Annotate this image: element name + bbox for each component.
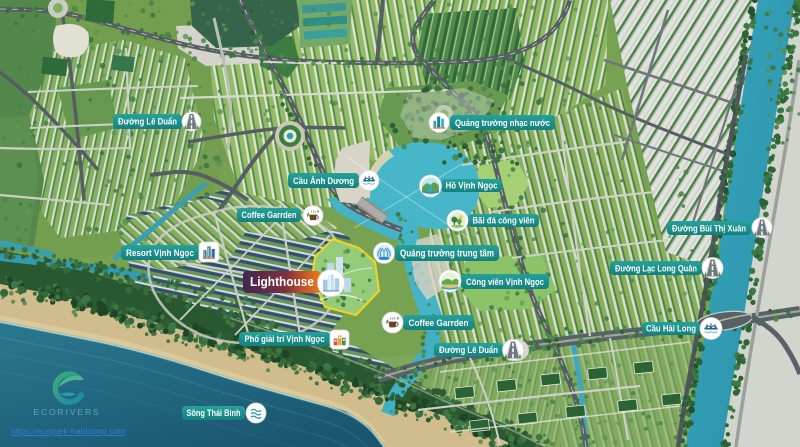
- svg-text:ECORIVERS: ECORIVERS: [33, 407, 100, 417]
- svg-text:Lighthouse: Lighthouse: [250, 275, 314, 289]
- svg-text:Đường Lạc Long Quân: Đường Lạc Long Quân: [615, 263, 697, 274]
- svg-text:Đường Bùi Thị Xuân: Đường Bùi Thị Xuân: [672, 223, 746, 234]
- svg-text:https://ecopark-haiduong.com: https://ecopark-haiduong.com: [11, 426, 125, 436]
- svg-text:Cầu Hải Long: Cầu Hải Long: [646, 324, 696, 334]
- svg-text:Coffee Garrden: Coffee Garrden: [242, 210, 297, 220]
- svg-text:Công viên Vịnh Ngọc: Công viên Vịnh Ngọc: [466, 277, 544, 288]
- svg-text:Bãi đá công viên: Bãi đá công viên: [473, 216, 535, 226]
- svg-text:Hồ Vịnh Ngọc: Hồ Vịnh Ngọc: [446, 181, 498, 191]
- svg-text:Resort Vịnh Ngọc: Resort Vịnh Ngọc: [126, 248, 194, 259]
- svg-text:Phố giải trí Vịnh Ngọc: Phố giải trí Vịnh Ngọc: [245, 334, 325, 344]
- svg-text:Đường Lê Duẩn: Đường Lê Duẩn: [439, 345, 498, 355]
- svg-text:Quảng trường nhạc nước: Quảng trường nhạc nước: [455, 118, 550, 129]
- svg-text:Sông Thái Bình: Sông Thái Bình: [187, 408, 241, 418]
- svg-text:Quảng trường trung tâm: Quảng trường trung tâm: [400, 249, 494, 260]
- svg-text:Cầu Ánh Dương: Cầu Ánh Dương: [293, 176, 354, 187]
- svg-text:Coffee Garrden: Coffee Garrden: [409, 318, 469, 329]
- svg-text:Đường Lê Duẩn: Đường Lê Duẩn: [118, 117, 177, 127]
